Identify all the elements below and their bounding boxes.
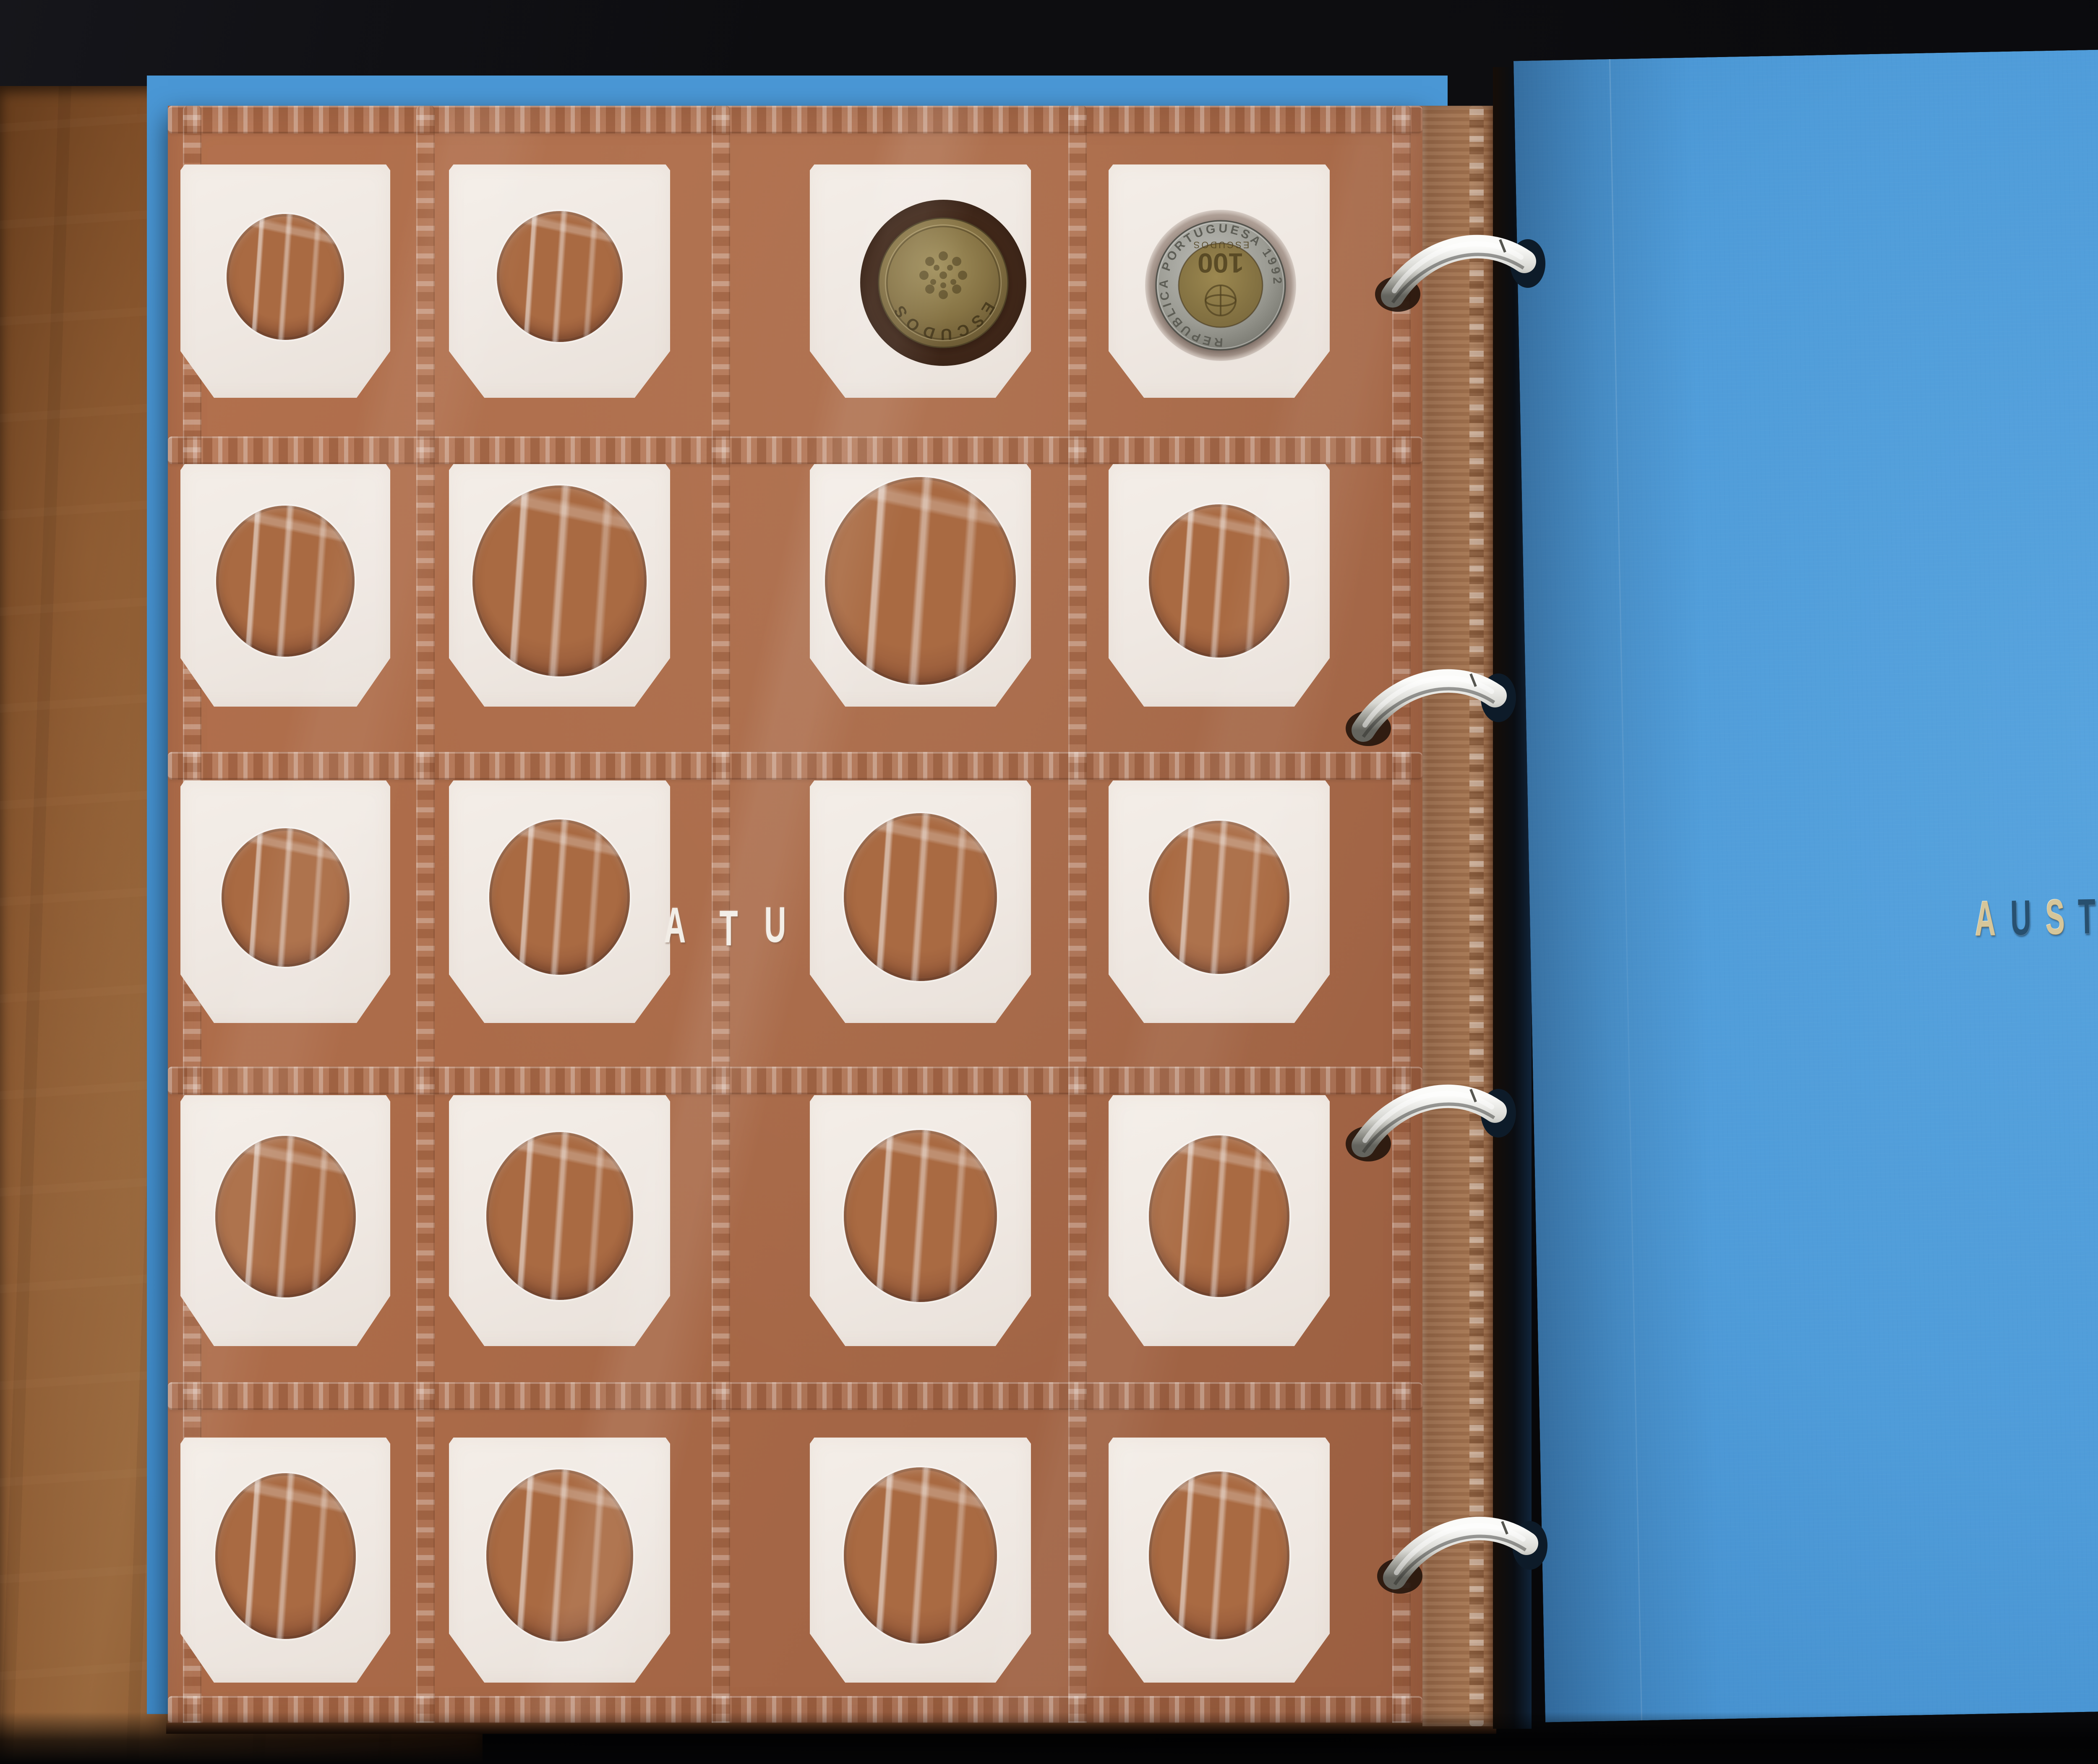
binder-ring-1 xyxy=(1365,186,1562,333)
coin-holder-r3c1 xyxy=(180,780,390,1023)
empty-coin-window xyxy=(215,1473,356,1639)
empty-coin-window xyxy=(486,1469,633,1641)
title-letter: A xyxy=(1974,894,1996,944)
coin-window-with-bimetallic-coin: REPUBLICA PORTUGUESA 1992 100 ESCUDOS xyxy=(1145,210,1296,361)
coin-holder-r3c4 xyxy=(1109,780,1330,1023)
binder-ring-4 xyxy=(1367,1468,1564,1615)
plastic-seam xyxy=(168,1382,1422,1410)
empty-coin-window xyxy=(497,211,623,342)
coin-holder-r2c1 xyxy=(180,464,390,707)
empty-coin-window xyxy=(227,214,344,340)
coin-holder-r1c2 xyxy=(449,164,670,398)
coin-holder-r1c1 xyxy=(180,164,390,398)
empty-coin-window xyxy=(1149,1135,1289,1297)
coin-holder-r5c3 xyxy=(810,1438,1031,1683)
right-page-austria-divider: A U S T R I A xyxy=(1513,34,2098,1722)
empty-coin-window xyxy=(844,1467,997,1644)
coin-holder-r4c3 xyxy=(810,1095,1031,1346)
empty-coin-window xyxy=(825,477,1016,685)
empty-coin-window xyxy=(215,1136,356,1297)
plastic-seam xyxy=(168,1696,1422,1724)
coin-holder-r5c4 xyxy=(1109,1438,1330,1683)
plastic-seam xyxy=(168,1067,1422,1094)
left-page-coin-holders: ESCUDOS xyxy=(168,106,1422,1726)
coin-holder-r2c4 xyxy=(1109,464,1330,707)
plastic-seam xyxy=(1068,106,1087,1726)
empty-coin-window xyxy=(1149,1472,1289,1639)
empty-coin-window xyxy=(844,813,997,981)
coin-holder-r3c2 xyxy=(449,780,670,1023)
coin-holder-r4c4 xyxy=(1109,1095,1330,1346)
title-letter: T xyxy=(2078,892,2096,942)
plastic-seam xyxy=(416,106,435,1726)
rosette-pattern xyxy=(919,251,967,299)
coin-album-photo: ESCUDOS xyxy=(0,0,2098,1764)
plastic-seam xyxy=(168,106,1422,133)
empty-coin-window xyxy=(486,1132,633,1300)
title-letter: U xyxy=(2010,893,2032,943)
partial-letter-t: T xyxy=(720,903,738,953)
coin-inner-legend: ESCUDOS xyxy=(1192,240,1250,250)
coin-holder-r2c3 xyxy=(810,464,1031,707)
empty-coin-window xyxy=(222,828,350,967)
coin-holder-r4c1 xyxy=(180,1095,390,1346)
coin-holder-r4c2 xyxy=(449,1095,670,1346)
empty-coin-window xyxy=(844,1130,997,1302)
left-page-bottom-edge xyxy=(166,1723,1496,1734)
title-letter: S xyxy=(2045,892,2065,942)
empty-coin-window xyxy=(472,485,647,676)
coin-holder-r3c3 xyxy=(810,780,1031,1023)
empty-coin-window xyxy=(216,506,355,657)
empty-coin-window xyxy=(489,819,630,975)
coin-value: 100 xyxy=(1198,248,1244,279)
binder-ring-3 xyxy=(1336,1036,1533,1182)
coin-holder-r5c1 xyxy=(180,1438,390,1683)
coin-window-with-brass-coin: ESCUDOS xyxy=(860,200,1026,366)
empty-coin-window xyxy=(1149,504,1289,658)
partial-letter-u: U xyxy=(764,900,786,950)
brass-escudos-coin: ESCUDOS xyxy=(878,217,1009,348)
partial-letter-a: A xyxy=(664,900,686,950)
empty-coin-window xyxy=(1149,821,1289,974)
plastic-seam xyxy=(168,752,1422,780)
plastic-seam xyxy=(168,436,1422,464)
bimetallic-100-escudos-coin: REPUBLICA PORTUGUESA 1992 100 ESCUDOS xyxy=(1155,220,1286,351)
page-title-austria: A U S T R I A xyxy=(1967,887,2098,948)
coin-holder-r5c2 xyxy=(449,1438,670,1683)
binder-ring-2 xyxy=(1336,620,1533,767)
coin-holder-r2c2 xyxy=(449,464,670,707)
